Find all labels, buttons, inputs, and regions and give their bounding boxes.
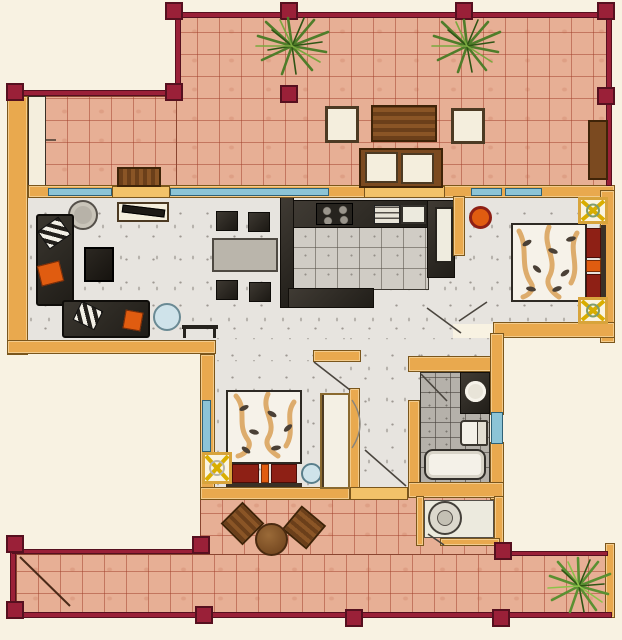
- kitchen-peninsula: [288, 288, 374, 308]
- duvet-pattern: [228, 392, 300, 462]
- railing-post: [345, 609, 363, 627]
- wall-bedroom-right-south: [493, 322, 615, 338]
- outdoor-armchair: [325, 106, 359, 143]
- railing-post: [492, 609, 510, 627]
- wall-living-bottom: [7, 340, 216, 354]
- entry-threshold-living: [112, 186, 170, 198]
- railing-post: [597, 87, 615, 105]
- toilet-tank: [477, 421, 487, 445]
- palm-plant: [430, 18, 504, 76]
- window-bedroom-right-1: [471, 188, 502, 196]
- bed-right-pillow-accent: [586, 260, 601, 272]
- railing-left-upper: [175, 12, 181, 92]
- nightstand-x: [578, 297, 608, 324]
- vanity-sink: [465, 381, 486, 402]
- railing-post: [195, 606, 213, 624]
- wall-bedroom-bottom-top: [313, 350, 361, 362]
- window-bathroom: [491, 412, 503, 444]
- round-glass-table-bedroom: [301, 463, 322, 484]
- bed-bottom-pillow-accent: [261, 464, 269, 483]
- outdoor-sofa-cushion: [365, 152, 398, 183]
- fridge: [435, 207, 453, 263]
- railing-post: [165, 2, 183, 20]
- round-wood-table: [255, 523, 288, 556]
- bed-right-pillow: [586, 228, 601, 258]
- railing-post: [597, 2, 615, 20]
- railing-top: [175, 12, 612, 18]
- orange-pillow: [122, 310, 143, 332]
- stove: [316, 203, 353, 225]
- bed-bottom-pillow: [232, 464, 259, 483]
- orange-stool: [469, 206, 492, 229]
- console-leg: [183, 329, 186, 338]
- dining-chair: [216, 280, 238, 300]
- wall-bath-right-upper: [490, 333, 504, 415]
- palm-plant: [252, 16, 332, 78]
- railing-post: [165, 83, 183, 101]
- wall-kitchen-right: [453, 196, 465, 256]
- window-living-right: [170, 188, 329, 196]
- round-glass-table-living: [153, 303, 181, 331]
- railing-post: [6, 601, 24, 619]
- railing-post: [280, 85, 298, 103]
- terrace-bottom-strip: [16, 554, 612, 616]
- dining-table: [212, 238, 278, 272]
- railing-post: [6, 535, 24, 553]
- terrace-walkway: [28, 96, 46, 187]
- wall-closet-right: [349, 388, 360, 490]
- kitchen-floor: [293, 226, 429, 290]
- utility-wall-left: [416, 496, 424, 546]
- green-plant: [546, 556, 612, 616]
- window-bedroom-bottom: [202, 400, 211, 452]
- coffee-table: [84, 247, 114, 282]
- outdoor-armchair: [451, 108, 485, 144]
- bathtub: [424, 449, 486, 480]
- dining-chair: [216, 211, 238, 231]
- terrace-door-threshold: [350, 487, 408, 500]
- bed-bottom-duvet: [226, 390, 302, 464]
- nightstand-x: [202, 452, 232, 484]
- slatted-table: [371, 105, 437, 142]
- railing-post: [6, 83, 24, 101]
- wall-bath-left: [408, 400, 420, 488]
- duvet-pattern: [513, 225, 585, 300]
- dining-chair: [248, 212, 270, 232]
- wall-left: [7, 96, 28, 355]
- wardrobe: [320, 393, 350, 489]
- utility-wall-bottom: [440, 538, 500, 546]
- railing-post: [494, 542, 512, 560]
- washing-machine-drum: [437, 510, 453, 526]
- window-bedroom-right-2: [505, 188, 542, 196]
- bed-right-headboard: [601, 225, 606, 303]
- nightstand-x: [578, 197, 608, 224]
- railing-post: [192, 536, 210, 554]
- drawer-unit: [374, 205, 400, 224]
- wood-bench: [588, 120, 608, 180]
- bed-bottom-footboard: [226, 483, 302, 487]
- bed-right-duvet: [511, 223, 587, 302]
- outdoor-sofa-cushion: [401, 153, 434, 184]
- railing-bottom-left-horizontal: [12, 549, 200, 554]
- kitchen-sink: [401, 205, 426, 224]
- floor-plan: [0, 0, 622, 640]
- railing-extension-top: [16, 90, 182, 96]
- console-leg: [213, 329, 216, 338]
- bed-bottom-pillow: [271, 464, 297, 483]
- window-living-left: [48, 188, 112, 196]
- railing-bottom: [10, 612, 612, 618]
- door-mat: [117, 167, 161, 187]
- dining-chair: [249, 282, 271, 302]
